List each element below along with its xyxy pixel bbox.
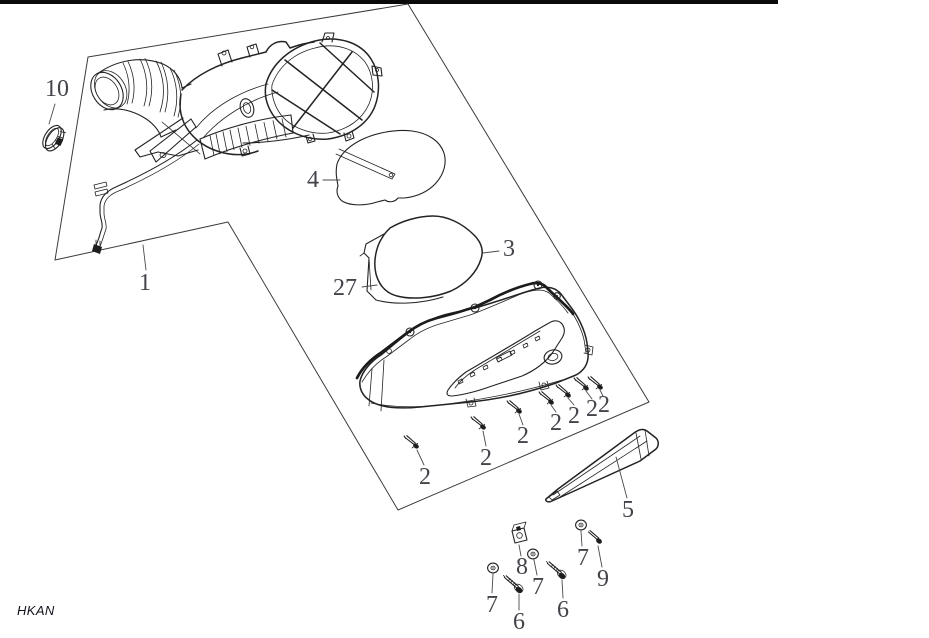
clip-nut-part8 — [512, 522, 527, 543]
callout-7a: 7 — [486, 593, 498, 617]
screw-part2 — [574, 378, 590, 392]
leader-line-10 — [49, 104, 55, 124]
parts-diagram-page: 1014327222222257687679 HKAN — [0, 0, 929, 638]
drain-hose — [92, 140, 199, 254]
callout-6a: 6 — [513, 610, 525, 634]
exploded-parts-drawing — [0, 0, 929, 638]
callout-8: 8 — [516, 555, 528, 579]
callout-2g: 2 — [598, 393, 610, 417]
washer-part7 — [528, 549, 539, 559]
hose-clamp-part10 — [39, 122, 69, 155]
screw-part2 — [471, 417, 487, 431]
leader-lines — [49, 104, 627, 610]
air-scoop-part5 — [546, 430, 658, 502]
callout-10: 10 — [45, 77, 69, 101]
callout-7b: 7 — [532, 575, 544, 599]
callout-6b: 6 — [557, 598, 569, 622]
footer-code: HKAN — [17, 603, 55, 618]
callout-2b: 2 — [480, 446, 492, 470]
callout-2a: 2 — [419, 465, 431, 489]
leader-line-5 — [616, 457, 627, 498]
callout-1: 1 — [139, 271, 151, 295]
leader-line-2a — [417, 450, 424, 465]
filter-frame-part27 — [360, 234, 443, 303]
callout-9: 9 — [597, 567, 609, 591]
callout-2c: 2 — [517, 424, 529, 448]
leader-line-7a — [492, 574, 493, 593]
screw-part2 — [404, 436, 420, 450]
air-cleaner-cover — [357, 281, 593, 411]
leader-line-2b — [483, 431, 486, 446]
washer-part7 — [488, 563, 499, 573]
screw-part2 — [588, 377, 604, 391]
callout-2d: 2 — [550, 411, 562, 435]
bolt-part6 — [546, 561, 567, 580]
callout-27: 27 — [333, 276, 357, 300]
leader-line-27 — [362, 285, 377, 287]
leader-line-7b — [534, 560, 537, 575]
callout-5: 5 — [622, 498, 634, 522]
callout-2e: 2 — [568, 404, 580, 428]
leader-line-7c — [581, 531, 582, 546]
callout-2f: 2 — [586, 397, 598, 421]
leader-line-1 — [143, 245, 146, 270]
filter-element-part3 — [375, 216, 482, 298]
bolt-part9 — [589, 531, 603, 545]
callout-4: 4 — [307, 168, 319, 192]
callout-3: 3 — [503, 237, 515, 261]
leader-line-6b — [562, 580, 563, 598]
washer-part7 — [576, 520, 587, 530]
callout-7c: 7 — [577, 546, 589, 570]
case-gasket-part4 — [336, 130, 445, 204]
screw-part2 — [539, 392, 555, 406]
leader-line-9 — [598, 546, 602, 567]
air-cleaner-assembly — [84, 33, 395, 254]
intake-elbow-duct — [84, 59, 191, 138]
air-cleaner-case-body — [135, 41, 395, 179]
screw-part2 — [507, 401, 523, 415]
screw-part2 — [556, 385, 572, 399]
leader-line-3 — [483, 251, 499, 253]
